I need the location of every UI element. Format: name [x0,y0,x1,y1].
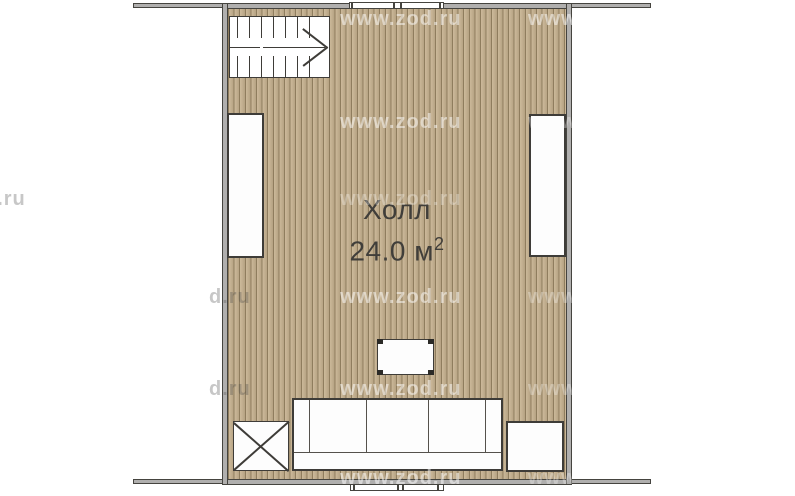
top-window [349,2,444,9]
watermark: d.ru [0,188,26,211]
room-label: Холл 24.0 м2 [290,192,504,268]
room-area: 24.0 м2 [290,227,504,268]
cabinet-left [227,113,264,258]
cabinet-right [529,114,566,257]
wall-bottom [222,479,572,485]
hall-room: Холл 24.0 м2 www.zod.ru www.zod.ru [222,2,572,486]
exterior-wall-extension-top-left [133,3,223,8]
sofa-cushion-divider [428,400,429,452]
exterior-wall-extension-bottom-right [571,479,651,484]
cabinet-bottom-right [506,421,564,472]
staircase [229,16,330,78]
sofa-arm-right [485,400,486,452]
sofa-arm-left [309,400,310,452]
coffee-table [377,339,434,375]
crossed-table [233,421,289,471]
sofa-seat-edge [294,452,501,453]
exterior-wall-extension-bottom-left [133,479,223,484]
floor-plan: d.ru d.ru d.ru [0,0,795,496]
stair-divider [230,47,260,49]
wall-right [566,3,572,485]
exterior-wall-extension-top-right [571,3,651,8]
sofa-cushion-divider [366,400,367,452]
sofa [292,398,503,471]
room-name: Холл [290,192,504,227]
